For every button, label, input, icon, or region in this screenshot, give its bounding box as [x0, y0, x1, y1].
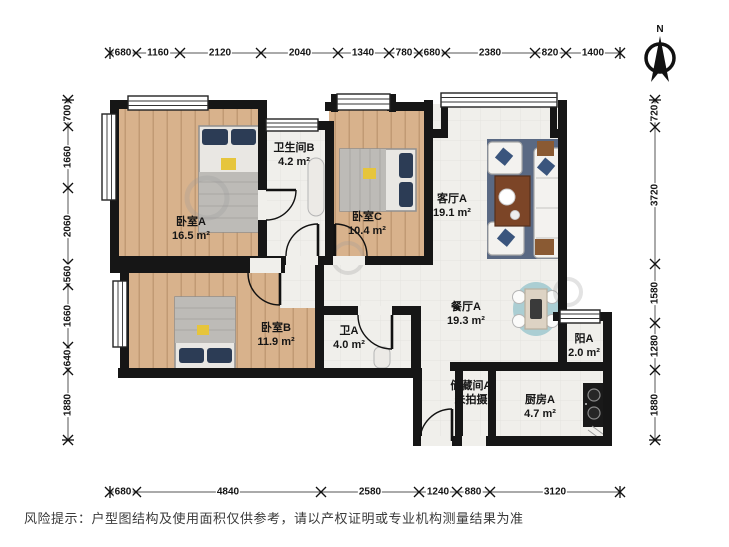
dim-label: 1160	[146, 48, 170, 59]
room-label-bedroomA: 卧室A 16.5 m²	[172, 215, 210, 243]
dim-label: 1580	[650, 281, 661, 305]
dim-label: 1880	[650, 393, 661, 417]
dim-label: 640	[63, 349, 74, 368]
dim-label: 3720	[650, 183, 661, 207]
room-name: 卧室C	[348, 210, 386, 224]
room-label-dining: 餐厅A 19.3 m²	[447, 300, 485, 328]
dim-label: 2060	[63, 214, 74, 238]
dim-label: 4840	[216, 487, 240, 498]
dim-label: 820	[541, 48, 560, 59]
dim-label: 720	[650, 104, 661, 123]
living-room-set	[487, 139, 567, 259]
dim-label: 680	[114, 48, 133, 59]
room-label-balcony: 阳A 2.0 m²	[568, 332, 600, 360]
room-label-bathB: 卫生间B 4.2 m²	[274, 141, 315, 169]
dim-label: 1660	[63, 304, 74, 328]
room-name: 客厅A	[433, 192, 471, 206]
bed-bedroomB	[175, 297, 235, 371]
dim-label: 560	[63, 265, 74, 284]
dim-label: 1240	[426, 487, 450, 498]
room-name: 厨房A	[524, 393, 556, 407]
floorplan-drawing	[0, 0, 729, 547]
window	[128, 96, 208, 110]
dim-label: 1660	[63, 145, 74, 169]
window	[266, 119, 318, 131]
window	[337, 94, 390, 110]
room-area: 10.4 m²	[348, 224, 386, 238]
dim-label: 880	[464, 487, 483, 498]
room-name: 卫生间B	[274, 141, 315, 155]
toilet-fixture	[374, 347, 390, 368]
dim-label: 2040	[288, 48, 312, 59]
dim-label: 780	[395, 48, 414, 59]
side-table	[537, 141, 554, 156]
dim-label: 1880	[63, 393, 74, 417]
dim-label: 2120	[208, 48, 232, 59]
room-name: 餐厅A	[447, 300, 485, 314]
room-area: 16.5 m²	[172, 229, 210, 243]
room-label-living: 客厅A 19.1 m²	[433, 192, 471, 220]
compass-north-label: N	[650, 24, 670, 35]
room-name: 卧室A	[172, 215, 210, 229]
dim-label: 2380	[478, 48, 502, 59]
north-compass-icon	[646, 36, 674, 82]
floorplan-page: 卧室A 16.5 m² 卫生间B 4.2 m² 卧室C 10.4 m² 客厅A …	[0, 0, 729, 547]
window	[102, 114, 116, 200]
dim-label: 680	[423, 48, 442, 59]
dim-label: 700	[63, 104, 74, 123]
dim-label: 1400	[581, 48, 605, 59]
room-area: 11.9 m²	[257, 335, 294, 349]
dim-label: 680	[114, 487, 133, 498]
dim-label: 1340	[351, 48, 375, 59]
room-name: 卧室B	[257, 321, 294, 335]
dim-label: 1280	[650, 334, 661, 358]
room-area: 未拍摄	[451, 393, 492, 407]
room-label-storage: 储藏间A 未拍摄	[451, 379, 492, 407]
disclaimer-text: 风险提示：户型图结构及使用面积仅供参考，请以产权证明或专业机构测量结果为准	[24, 508, 524, 527]
room-label-bedroomC: 卧室C 10.4 m²	[348, 210, 386, 238]
room-name: 储藏间A	[451, 379, 492, 393]
side-table	[535, 239, 554, 255]
room-area: 4.7 m²	[524, 407, 556, 421]
dim-label: 3120	[543, 487, 567, 498]
room-label-bedroomB: 卧室B 11.9 m²	[257, 321, 294, 349]
bed-bedroomC	[340, 149, 416, 211]
room-label-kitchen: 厨房A 4.7 m²	[524, 393, 556, 421]
dim-label: 2580	[358, 487, 382, 498]
room-area: 2.0 m²	[568, 346, 600, 360]
window	[560, 310, 600, 323]
window	[113, 281, 127, 347]
window	[441, 93, 557, 107]
room-area: 19.1 m²	[433, 206, 471, 220]
room-area: 4.0 m²	[333, 338, 365, 352]
room-name: 卫A	[333, 324, 365, 338]
room-area: 4.2 m²	[274, 155, 315, 169]
room-name: 阳A	[568, 332, 600, 346]
room-area: 19.3 m²	[447, 314, 485, 328]
room-label-toiletA: 卫A 4.0 m²	[333, 324, 365, 352]
dining-set	[513, 282, 560, 336]
